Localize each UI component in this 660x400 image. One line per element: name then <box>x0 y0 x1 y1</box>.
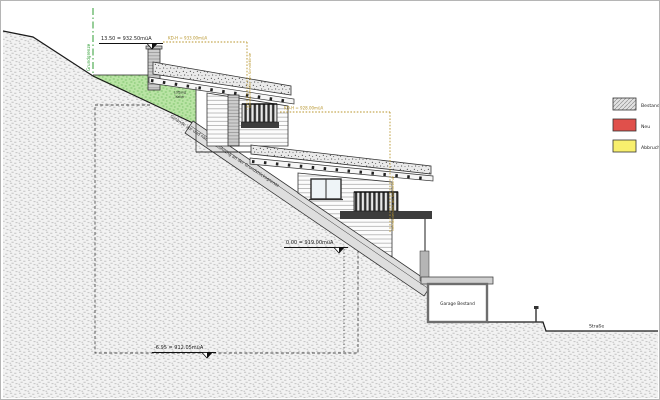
wall-pier <box>420 251 429 281</box>
vent-label-line2: Keller <box>176 95 186 99</box>
upper-height-text: KD-H = 933.00müA <box>168 36 207 41</box>
section-drawing: Gelände vor und nach Bauführung an der G… <box>0 0 660 400</box>
legend-swatch-abbruch <box>613 140 636 152</box>
garage: Garage Bestand <box>421 277 493 322</box>
legend-swatch-neu <box>613 119 636 131</box>
lower-height-text: KD-H = 928.00müA <box>284 106 323 111</box>
section-drawing-canvas: Gelände vor und nach Bauführung an der G… <box>0 0 660 400</box>
property-boundary-label: Grundgrenze <box>86 43 91 71</box>
legend-label-abbruch: Abbruch <box>641 145 660 151</box>
vent-label-line1: Lüftung <box>174 91 186 95</box>
fence-post-cap <box>534 306 539 309</box>
legend-label-neu: Neu <box>641 124 650 130</box>
garage-label: Garage Bestand <box>440 301 475 307</box>
street-label: Straße <box>589 324 604 330</box>
level-top-text: 13.50 = 932.50müA <box>101 36 152 42</box>
lower-height-vertical-text: Gebäudehöhe an Schnittlinie <box>390 175 395 231</box>
lower-chimney <box>228 95 239 146</box>
legend-label-bestand: Bestand <box>641 103 660 109</box>
upper-height-vertical-text: Gebäudehöhe an Schnittlinie <box>247 52 252 108</box>
upper-balcony-slab <box>241 122 279 128</box>
level-bottom-text: -6.95 = 912.05müA <box>154 345 204 351</box>
legend-swatch-bestand <box>613 98 636 110</box>
level-zero-text: 0.00 = 919.00müA <box>286 240 334 246</box>
lower-balcony-slab <box>340 211 432 219</box>
